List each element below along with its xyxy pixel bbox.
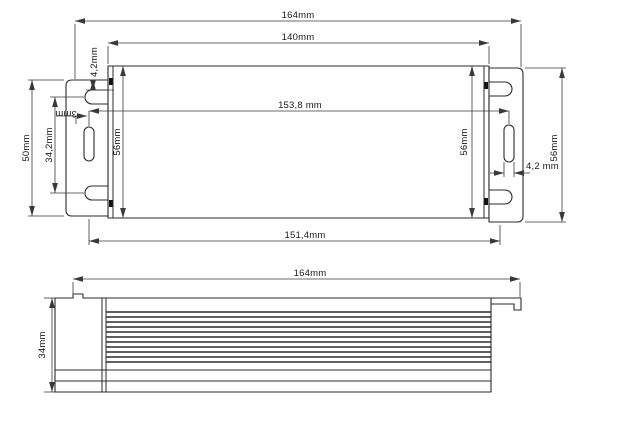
- left-flange-slot: [84, 127, 94, 161]
- dim-left-flange-height-label: 50mm: [21, 134, 32, 161]
- screw-mark: [109, 78, 113, 85]
- side-dim-height-label: 34mm: [37, 331, 48, 358]
- dim-overall-length-label: 164mm: [282, 10, 315, 21]
- screw-mark: [485, 198, 489, 205]
- dim-left-flange-height: 50mm: [21, 80, 64, 216]
- dim-body-width-right-label: 56mm: [459, 128, 470, 155]
- screw-mark: [109, 200, 113, 207]
- side-dim-overall-length: 164mm: [73, 268, 520, 297]
- side-right-flange: [491, 298, 521, 310]
- dim-body-length-label: 140mm: [282, 32, 315, 43]
- dim-mount-hole-span-label: 153,8 mm: [278, 100, 322, 111]
- dim-base-length: 151,4mm: [89, 219, 500, 245]
- enclosure-body: [108, 66, 489, 218]
- dim-body-length: 140mm: [108, 32, 489, 64]
- drawing-canvas: 164mm 140mm 153,8 mm 151,4mm: [0, 0, 619, 429]
- dim-base-length-label: 151,4mm: [284, 230, 325, 241]
- dim-left-hole-label: 3mm: [55, 108, 77, 119]
- side-dim-height: 34mm: [37, 298, 55, 392]
- dim-right-flange-height: 56mm: [525, 68, 566, 222]
- plan-view: 164mm 140mm 153,8 mm 151,4mm: [21, 10, 566, 245]
- right-flange-slot: [504, 125, 514, 162]
- dim-left-notch-offset-label: 4,2mm: [89, 47, 100, 77]
- screw-mark: [485, 82, 489, 89]
- dim-right-slot-width-label: 4,2 mm: [526, 161, 559, 172]
- side-body: [55, 294, 491, 392]
- dim-body-width-left-label: 56mm: [112, 128, 123, 155]
- side-dim-overall-length-label: 164mm: [294, 268, 327, 279]
- technical-drawing: 164mm 140mm 153,8 mm 151,4mm: [0, 0, 619, 429]
- side-view: 164mm 34mm: [37, 268, 521, 392]
- dim-left-slot-span-label: 34,2mm: [44, 127, 55, 163]
- dim-right-flange-height-label: 56mm: [549, 134, 560, 161]
